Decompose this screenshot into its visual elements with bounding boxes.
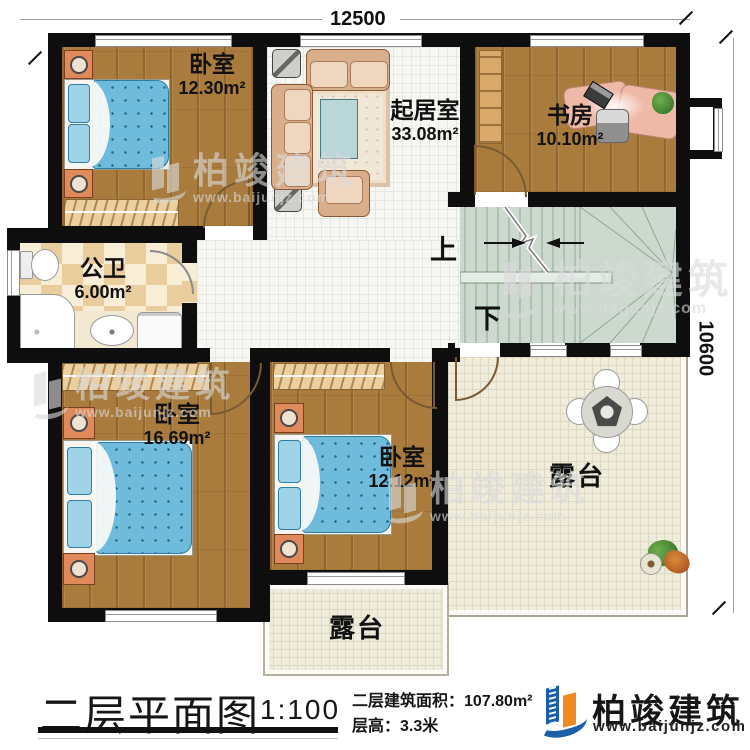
room-label-bathroom: 公卫 6.00m² [38,256,168,302]
dimension-line-top [20,19,322,20]
room-label-bedroom-bottomleft: 卧室 16.69m² [112,402,242,448]
room-label-terrace-large: 露台 [512,462,642,491]
sofa-top [306,49,390,91]
window [530,345,567,357]
window [95,35,232,47]
wall [448,192,472,207]
wall [565,343,610,357]
wall [262,348,390,362]
room-label-study: 书房 10.10m² [505,103,635,149]
wall [528,192,690,207]
pillow [67,500,92,548]
patio-table-center [591,396,623,428]
wall [640,343,676,357]
sink [90,315,134,346]
dimension-tick [28,51,42,65]
room-label-bedroom-topleft: 卧室 12.30m² [147,52,277,98]
pillow [68,124,90,163]
nightstand [274,534,304,564]
pillow [67,447,92,495]
nightstand [274,403,304,433]
wall [197,348,210,362]
wall [48,348,62,622]
patio-table [581,386,633,438]
wall [48,33,62,240]
dimension-top-value: 12500 [330,8,386,31]
wardrobe [64,199,179,227]
room-label-livingroom: 起居室 33.08m² [360,98,490,144]
wall [182,243,197,263]
pillow [278,440,301,483]
door-leaf [455,357,457,399]
door-leaf [433,362,435,407]
stairs-up-label: 上 [430,228,457,267]
nightstand [63,407,95,439]
room-label-bedroom-bottommiddle: 卧室 12.12m² [337,445,467,491]
coffee-table [320,99,358,159]
company-url: www.baijunjz.com [593,718,746,735]
dimension-tick [712,601,726,615]
window [300,35,422,47]
title-underline [38,727,338,733]
floor-plan-sheet: 卧室 12.30m² 起居室 33.08m² 书房 10.10m² 公卫 6.0… [0,0,750,750]
dimension-right-value: 10600 [694,320,717,376]
nightstand [64,50,93,79]
bay-window-glass [714,108,723,152]
sheet-scale: 1:100 [260,694,340,726]
wall [182,303,197,348]
window [7,250,20,296]
company-logo-icon [537,685,587,737]
window [105,610,217,622]
washing-machine [137,312,182,349]
dimension-tick [679,11,693,25]
wall [7,348,197,363]
door-leaf [248,179,250,226]
title-underline-thin [38,738,338,739]
room-floor-hallway [197,240,460,362]
wall [500,343,530,357]
sheet-title: 二层平面图 [40,682,260,743]
wardrobe [273,363,385,390]
door-leaf [474,145,476,195]
pillow [278,487,301,530]
window [610,345,642,357]
window [530,35,644,47]
window [307,572,405,585]
sofa-left [271,84,313,190]
dimension-line-top [400,19,690,20]
wall [676,33,690,357]
potted-plant [652,92,674,114]
plant-pot [640,553,662,575]
dimension-tick [719,30,733,44]
wall [448,343,455,357]
shower-tray [20,294,75,349]
nightstand [63,553,95,585]
nightstand [64,169,93,198]
room-label-terrace-small: 露台 [292,614,422,643]
wall [7,228,197,243]
wardrobe [62,363,210,391]
floor-height-stat: 层高：3.3米 [352,712,438,736]
armchair [318,170,370,217]
stairs-down-label: 下 [474,297,501,336]
dimension-line-right [733,38,734,613]
pillow [68,84,90,123]
floor-area-stat: 二层建筑面积：107.80m² [352,687,533,711]
dimension-right-label: 10600 [683,316,727,380]
